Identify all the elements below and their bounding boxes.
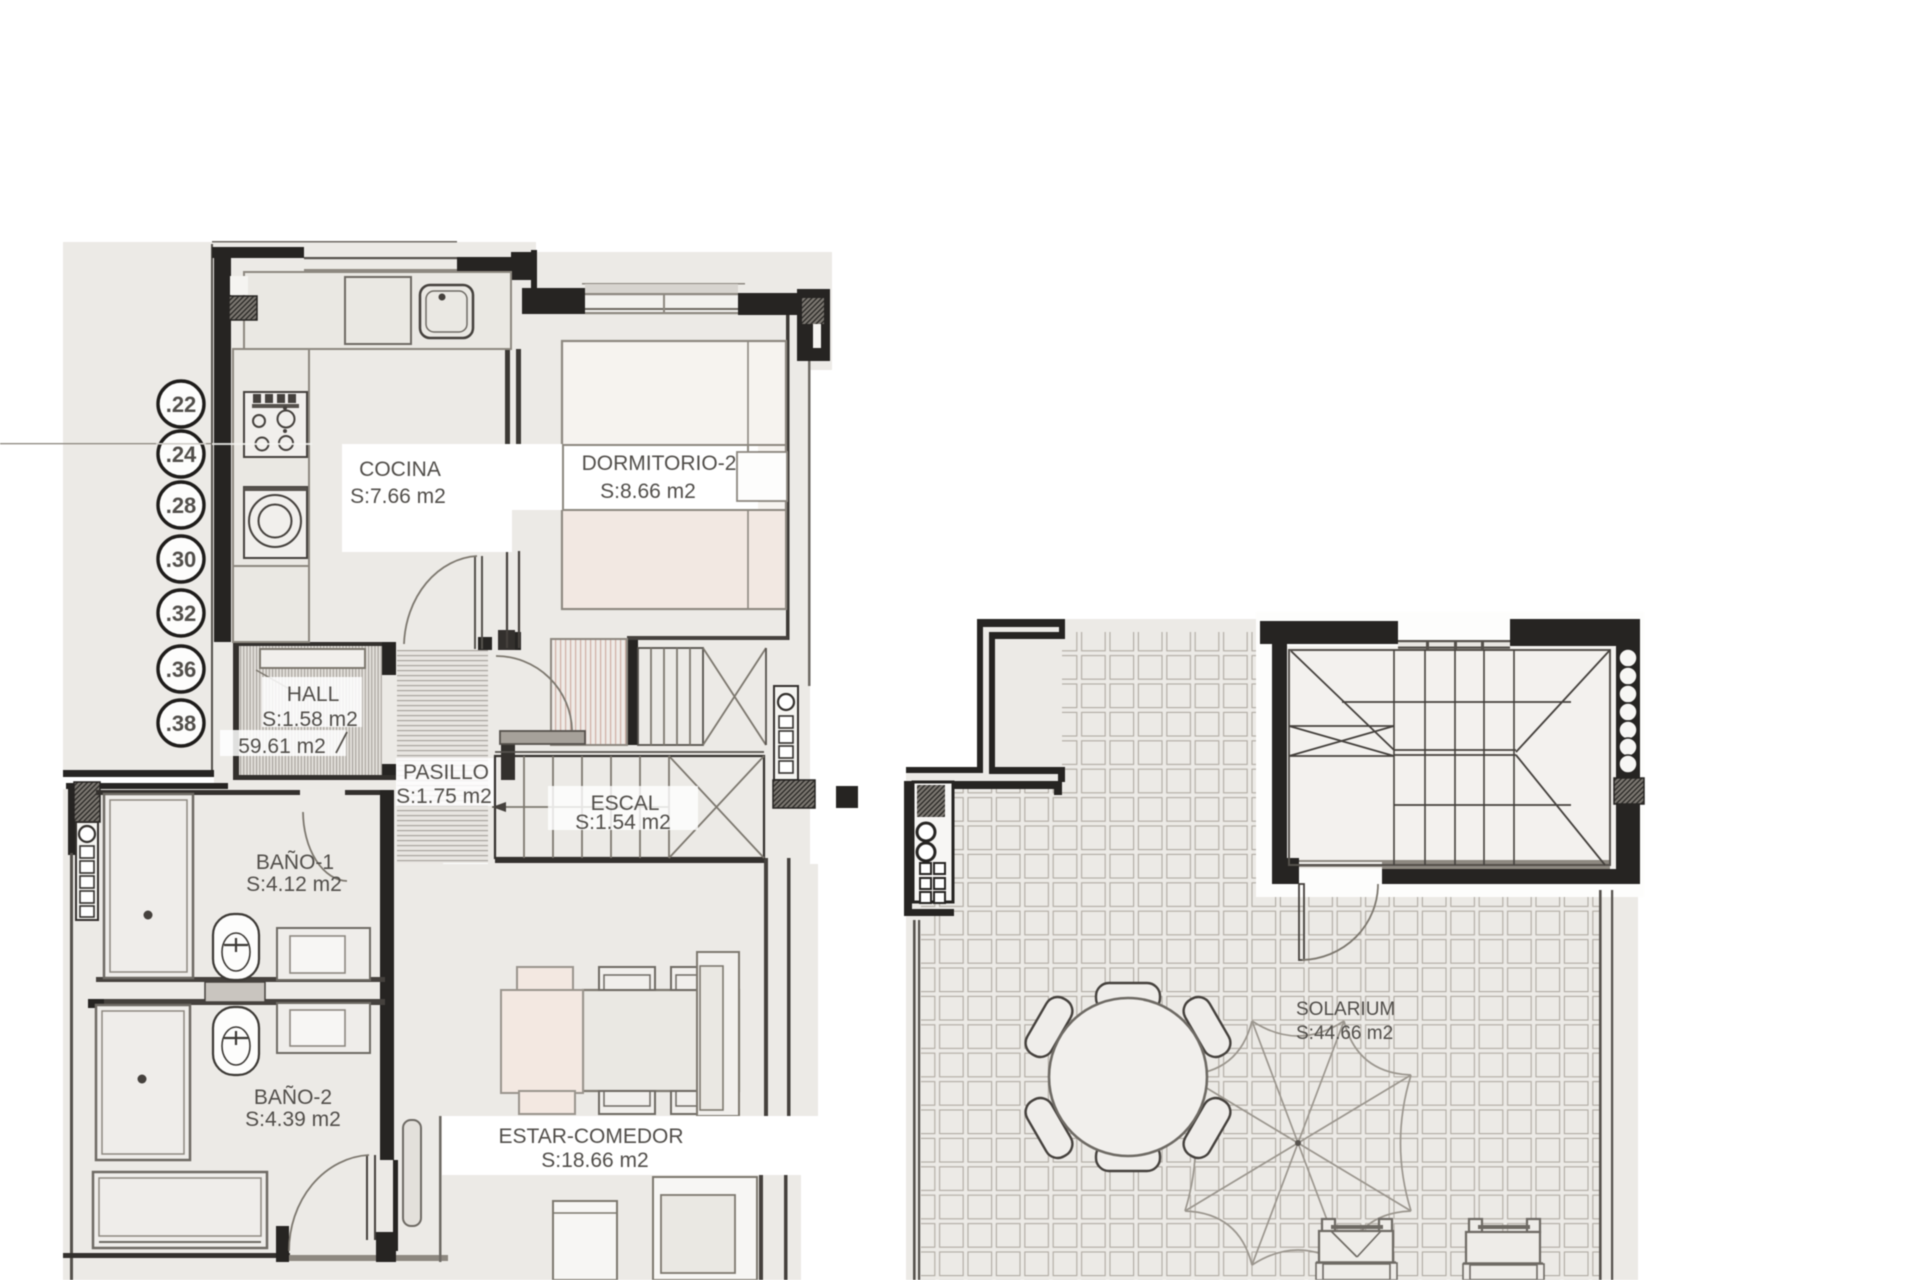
svg-text:S:1.58 m2: S:1.58 m2 [262, 708, 358, 731]
svg-text:S:7.66 m2: S:7.66 m2 [350, 485, 446, 508]
svg-text:BAÑO-1: BAÑO-1 [256, 850, 334, 874]
svg-text:.36: .36 [166, 657, 197, 682]
svg-text:S:4.39 m2: S:4.39 m2 [245, 1108, 341, 1131]
svg-text:ESTAR-COMEDOR: ESTAR-COMEDOR [498, 1125, 683, 1148]
svg-text:COCINA: COCINA [359, 458, 441, 481]
svg-text:.38: .38 [166, 711, 197, 736]
svg-text:.30: .30 [166, 547, 197, 572]
svg-text:SOLARIUM: SOLARIUM [1296, 999, 1395, 1020]
svg-text:.24: .24 [166, 442, 197, 467]
svg-text:S:4.12 m2: S:4.12 m2 [246, 873, 342, 896]
svg-text:.22: .22 [166, 392, 197, 417]
svg-text:S:1.75 m2: S:1.75 m2 [396, 785, 492, 808]
svg-text:HALL: HALL [287, 683, 340, 706]
svg-text:S:44.66 m2: S:44.66 m2 [1296, 1023, 1393, 1044]
svg-text:DORMITORIO-2: DORMITORIO-2 [582, 452, 737, 475]
svg-text:.32: .32 [166, 601, 197, 626]
svg-text:BAÑO-2: BAÑO-2 [254, 1085, 332, 1109]
svg-text:.28: .28 [166, 493, 197, 518]
svg-text:S:18.66 m2: S:18.66 m2 [541, 1149, 648, 1172]
svg-text:S:1.54 m2: S:1.54 m2 [575, 811, 671, 834]
svg-text:59.61 m2: 59.61 m2 [238, 735, 326, 758]
svg-text:PASILLO: PASILLO [403, 761, 489, 784]
svg-text:S:8.66 m2: S:8.66 m2 [600, 480, 696, 503]
